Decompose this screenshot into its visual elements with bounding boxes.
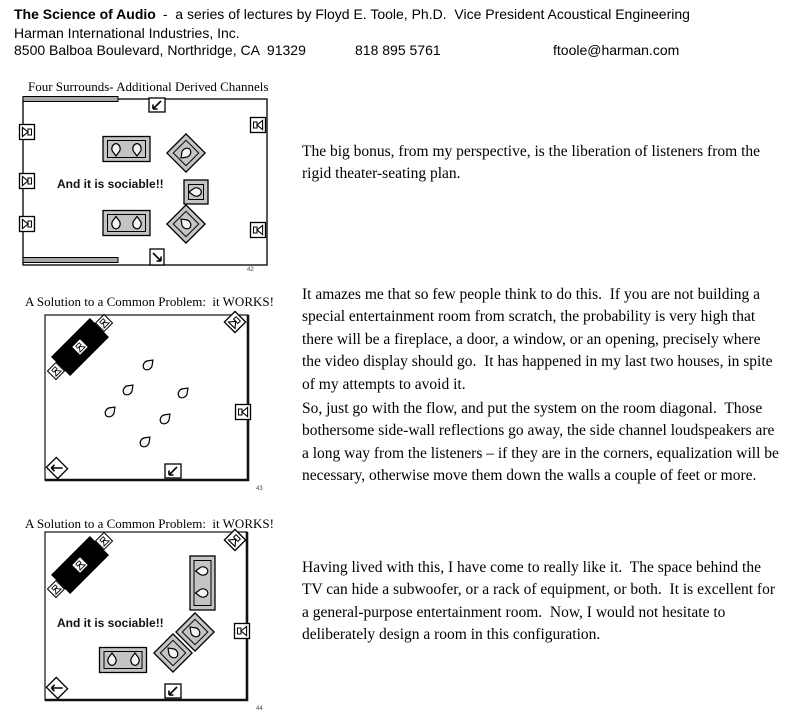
figure-2-diagram: 43 — [43, 306, 265, 498]
header-phone: 818 895 5761 — [355, 41, 441, 59]
slide-number: 44 — [256, 706, 263, 712]
header-company: Harman International Industries, Inc. — [14, 24, 240, 42]
surround-speaker-icon — [236, 405, 251, 420]
figure-caption: And it is sociable!! — [57, 616, 164, 630]
surround-speaker-icon — [165, 464, 181, 478]
surround-speaker-icon — [20, 217, 35, 232]
page-title: The Science of Audio — [14, 6, 156, 22]
surround-speaker-icon — [20, 174, 35, 189]
document-page: The Science of Audio- a series of lectur… — [0, 0, 790, 721]
header-address: 8500 Balboa Boulevard, Northridge, CA 91… — [14, 41, 306, 59]
figure-3-diagram: And it is sociable!! 44 — [43, 528, 265, 720]
figure-1-title: Four Surrounds- Additional Derived Chann… — [28, 79, 268, 95]
slide-number: 43 — [256, 486, 263, 492]
paragraph-3: So, just go with the flow, and put the s… — [302, 398, 782, 488]
wall-panel — [23, 97, 118, 102]
surround-speaker-icon — [149, 98, 165, 112]
sofa — [103, 211, 150, 236]
slide-number: 42 — [247, 267, 254, 273]
header-email: ftoole@harman.com — [553, 41, 679, 59]
surround-speaker-icon — [150, 249, 164, 265]
sofa — [103, 137, 150, 162]
surround-speaker-icon — [235, 624, 250, 639]
figure-caption: And it is sociable!! — [57, 177, 164, 191]
wall-panel — [23, 258, 118, 263]
surround-speaker-icon — [251, 223, 266, 238]
surround-speaker-icon — [165, 684, 181, 698]
header-subtitle: - a series of lectures by Floyd E. Toole… — [163, 6, 690, 22]
paragraph-2: It amazes me that so few people think to… — [302, 284, 782, 396]
surround-speaker-icon — [251, 118, 266, 133]
paragraph-1: The big bonus, from my perspective, is t… — [302, 141, 782, 186]
figure-1-diagram: And it is sociable!! 42 — [18, 94, 270, 276]
paragraph-4: Having lived with this, I have come to r… — [302, 557, 782, 647]
surround-speaker-icon — [20, 125, 35, 140]
document-header: The Science of Audio- a series of lectur… — [14, 5, 690, 23]
